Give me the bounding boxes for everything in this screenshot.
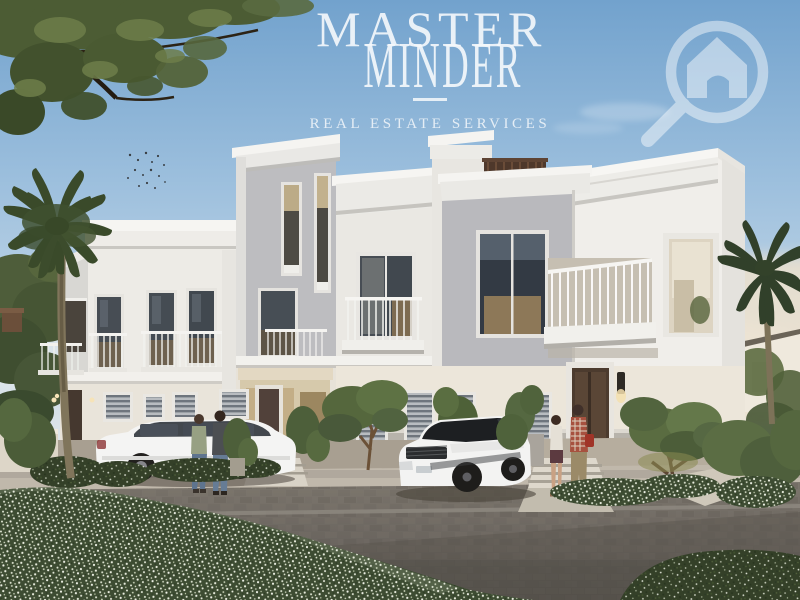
svg-text:REAL ESTATE SERVICES: REAL ESTATE SERVICES: [310, 116, 551, 132]
svg-text:MINDER: MINDER: [363, 28, 522, 102]
